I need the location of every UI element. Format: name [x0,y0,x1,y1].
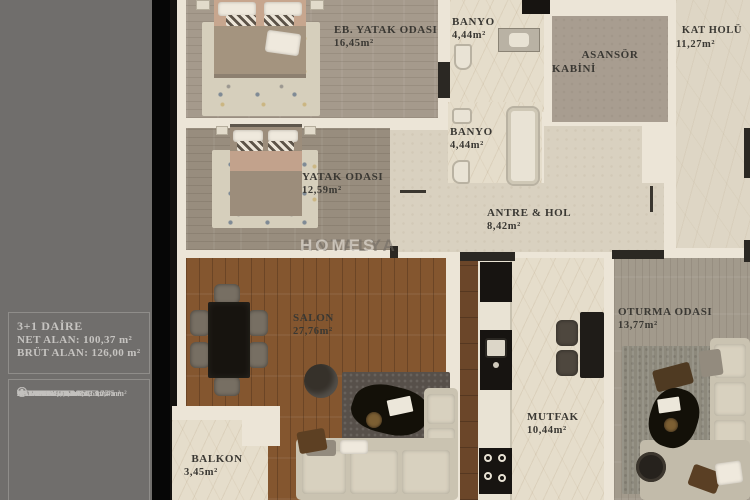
sidebar: 3+1 DAİRE NET ALAN: 100,37 m² BRÜT ALAN:… [0,0,152,500]
legend-item: 9BANYO: 4,44 m² [17,387,80,401]
label-asansor-kabini: ASANSÖR KABİNİ [552,48,668,62]
cooktop [479,448,512,494]
kitchen-table [580,312,604,378]
label-antre-hol: ANTRE & HOL 8,42m² [487,206,571,220]
side-table [636,452,666,482]
dining-chair [248,310,268,336]
sidebar-divider [152,0,170,500]
label-eb-yatak-odasi: EB. YATAK ODASI 16,45m² [334,23,437,37]
wall-core [460,252,515,261]
sofa-pillow [698,349,723,378]
nightstand [304,126,316,135]
nightstand [196,0,210,10]
toilet [454,44,472,70]
wall-column [242,406,280,446]
toilet [452,160,470,184]
label-yatak-odasi: YATAK ODASI 12,59m² [302,170,383,184]
bathroom-door-leaf [400,190,426,193]
label-banyo-top: BANYO 4,44m² [452,15,495,29]
room-antre-hol [544,126,642,183]
round-stool [304,364,338,398]
label-oturma-odasi: OTURMA ODASI 13,77m² [618,305,712,319]
entrance-door-leaf [650,186,653,212]
kitchen-cabinet-strip [460,258,478,500]
vanity [498,28,540,52]
wall-core [438,62,450,98]
sink-unit [480,330,512,390]
label-mutfak: MUTFAK 10,44m² [527,410,579,424]
dining-chair [190,342,210,368]
nightstand [216,126,228,135]
wall-core [744,128,750,178]
bed [214,0,306,78]
fridge [480,262,512,302]
room-mutfak [512,258,604,500]
dining-chair [214,284,240,304]
wall-core [612,250,664,259]
plan-summary-box: 3+1 DAİRE NET ALAN: 100,37 m² BRÜT ALAN:… [8,312,150,374]
label-kat-holu: KAT HOLÜ 11,27m² [676,24,748,38]
decor-bowl [664,418,678,432]
room-legend-box: 1ANTRE&HOL: 8,42 m² 2OTURMA ODASI: 13,77… [8,379,150,500]
dining-chair [214,376,240,396]
floor-plan-page: 3+1 DAİRE NET ALAN: 100,37 m² BRÜT ALAN:… [0,0,750,500]
label-salon: SALON 27,76m² [293,311,334,325]
net-area-line: NET ALAN: 100,37 m² [17,334,141,348]
shower-unit [522,0,550,14]
decor-bowl [366,412,382,428]
bed [230,124,302,216]
apartment-type-title: 3+1 DAİRE [17,320,141,334]
nightstand [310,0,324,10]
gross-area-line: BRÜT ALAN: 126,00 m² [17,347,141,361]
label-banyo-mid: BANYO 4,44m² [450,125,493,139]
sink [452,108,472,124]
sofa [296,438,458,500]
kitchen-chair [556,350,578,376]
dining-table [208,302,250,378]
bathtub [506,106,540,186]
label-balkon: BALKON 3,45m² [184,452,250,466]
kitchen-chair [556,320,578,346]
dining-chair [190,310,210,336]
wall-core [744,240,750,262]
dining-chair [248,342,268,368]
